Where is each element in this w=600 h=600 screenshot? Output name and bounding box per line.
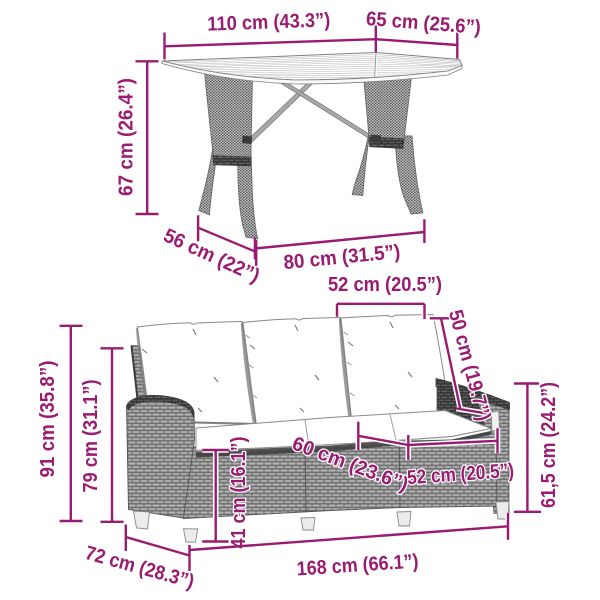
svg-text:79 cm (31.1”): 79 cm (31.1”): [80, 380, 102, 493]
svg-text:67 cm (26.4”): 67 cm (26.4”): [116, 78, 138, 196]
svg-text:91 cm (35.8”): 91 cm (35.8”): [37, 361, 59, 478]
svg-text:52 cm (20.5”): 52 cm (20.5”): [328, 274, 442, 296]
svg-text:61,5 cm (24.2”): 61,5 cm (24.2”): [538, 382, 560, 508]
svg-text:41 cm (16.1”): 41 cm (16.1”): [228, 437, 250, 549]
svg-text:110 cm (43.3”): 110 cm (43.3”): [207, 9, 331, 35]
